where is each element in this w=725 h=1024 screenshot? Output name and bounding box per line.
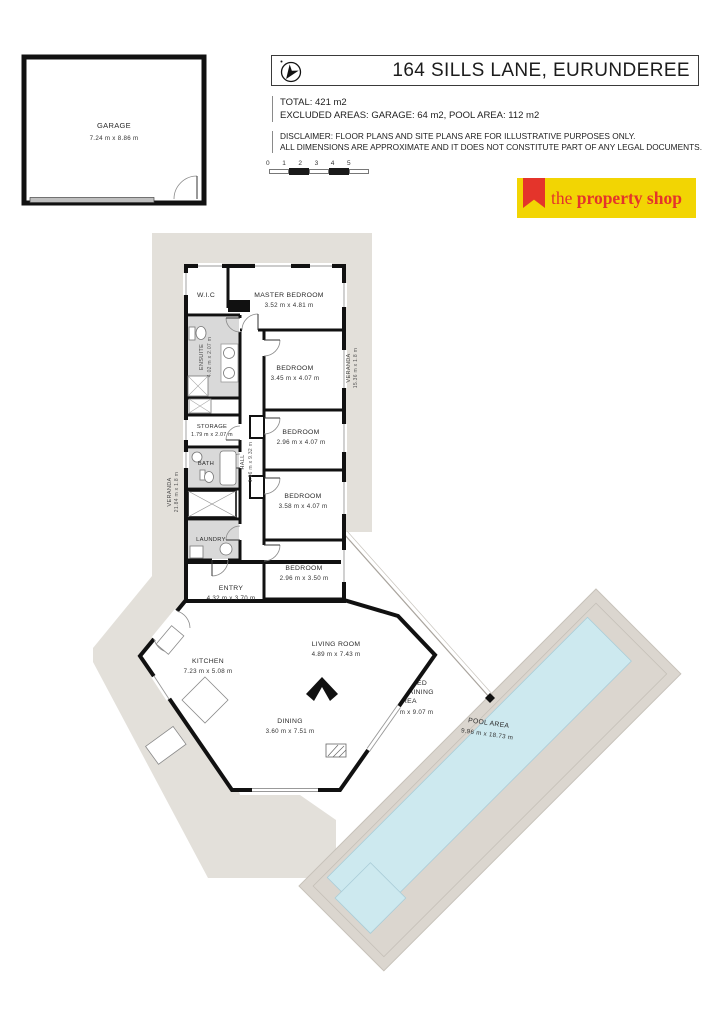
label-living-room: LIVING ROOM (312, 641, 361, 648)
garage-door (30, 198, 154, 203)
floorplan-canvas: POOL AREA 9.96 m x 18.73 m SCREENED ENTE… (0, 0, 725, 1024)
svg-text:7.23 m x 5.08 m: 7.23 m x 5.08 m (184, 668, 233, 675)
svg-text:4.89 m x 7.43 m: 4.89 m x 7.43 m (312, 651, 361, 658)
svg-text:4.02 m x 2.07 m: 4.02 m x 2.07 m (207, 337, 213, 377)
garage: GARAGE 7.24 m x 8.86 m (24, 57, 204, 203)
label-entry: ENTRY (219, 585, 244, 592)
svg-text:2.96 m x 3.50 m: 2.96 m x 3.50 m (280, 575, 329, 582)
label-dining: DINING (277, 718, 303, 725)
svg-text:21.84 m x 1.8 m: 21.84 m x 1.8 m (174, 472, 180, 512)
compass-icon (278, 58, 304, 84)
scale-track (269, 169, 369, 174)
label-bedroom-4: BEDROOM (284, 493, 321, 500)
svg-text:3.45 m x 4.07 m: 3.45 m x 4.07 m (271, 375, 320, 382)
scale-numbers: 0 1 2 3 4 5 (269, 160, 369, 167)
label-bedroom-5: BEDROOM (285, 565, 322, 572)
svg-text:15.36 m x 1.8 m: 15.36 m x 1.8 m (353, 348, 359, 388)
label-ensuite: ENSUITE (199, 344, 205, 370)
title-bar: 164 SILLS LANE, EURUNDEREE (271, 55, 699, 86)
svg-text:3.60 m x 7.51 m: 3.60 m x 7.51 m (266, 728, 315, 735)
svg-text:3.52 m x 4.81 m: 3.52 m x 4.81 m (265, 302, 314, 309)
label-veranda-right: VERANDA (346, 353, 352, 382)
svg-text:GARAGE: GARAGE (97, 121, 131, 130)
svg-text:7.24 m x 8.86 m: 7.24 m x 8.86 m (90, 135, 139, 142)
label-bath: BATH (198, 461, 214, 467)
total-area: TOTAL: 421 m2 (280, 96, 539, 109)
disclaimer-line-2: ALL DIMENSIONS ARE APPROXIMATE AND IT DO… (280, 142, 702, 153)
logo-name: property shop (577, 188, 682, 209)
svg-text:4.32 m x 3.70 m: 4.32 m x 3.70 m (207, 595, 256, 602)
label-bedroom-2: BEDROOM (276, 365, 313, 372)
label-veranda-left: VERANDA (167, 477, 173, 506)
label-hall: HALL (240, 454, 246, 469)
label-laundry: LAUNDRY (196, 537, 226, 543)
label-storage: STORAGE (197, 424, 227, 430)
label-bedroom-3: BEDROOM (282, 429, 319, 436)
label-wic: W.I.C (197, 292, 215, 299)
page-title: 164 SILLS LANE, EURUNDEREE (304, 60, 698, 82)
label-master-bedroom: MASTER BEDROOM (254, 292, 324, 299)
svg-text:1.79 m x 2.07 m: 1.79 m x 2.07 m (191, 432, 233, 438)
logo-the: the (551, 188, 577, 209)
agency-logo: the property shop (517, 178, 696, 218)
svg-text:2.96 m x 4.07 m: 2.96 m x 4.07 m (277, 439, 326, 446)
ribbon-icon (523, 178, 545, 208)
area-summary: TOTAL: 421 m2 EXCLUDED AREAS: GARAGE: 64… (272, 96, 539, 122)
svg-text:3.58 m x 4.07 m: 3.58 m x 4.07 m (279, 503, 328, 510)
label-kitchen: KITCHEN (192, 658, 224, 665)
svg-text:1.06 m x 9.32 m: 1.06 m x 9.32 m (248, 442, 254, 482)
excluded-areas: EXCLUDED AREAS: GARAGE: 64 m2, POOL AREA… (280, 109, 539, 122)
disclaimer-line-1: DISCLAIMER: FLOOR PLANS AND SITE PLANS A… (280, 131, 702, 142)
house-outline (140, 266, 435, 790)
disclaimer: DISCLAIMER: FLOOR PLANS AND SITE PLANS A… (272, 131, 702, 153)
scale-bar: 0 1 2 3 4 5 (269, 160, 369, 178)
